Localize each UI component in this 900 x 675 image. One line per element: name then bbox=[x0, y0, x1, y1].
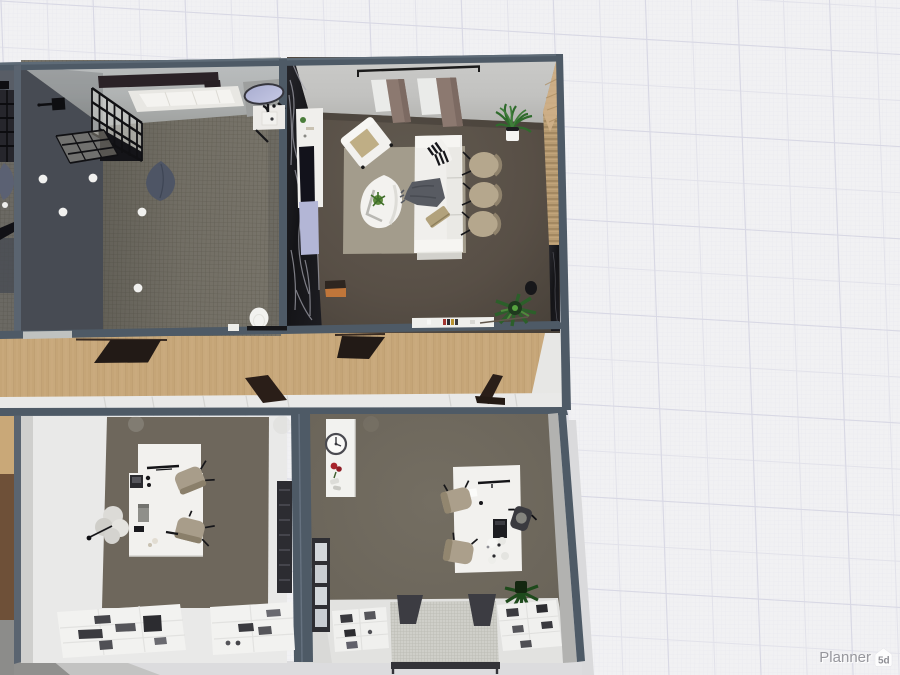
svg-text:Planner: Planner bbox=[819, 649, 871, 666]
svg-text:5d: 5d bbox=[878, 656, 890, 667]
